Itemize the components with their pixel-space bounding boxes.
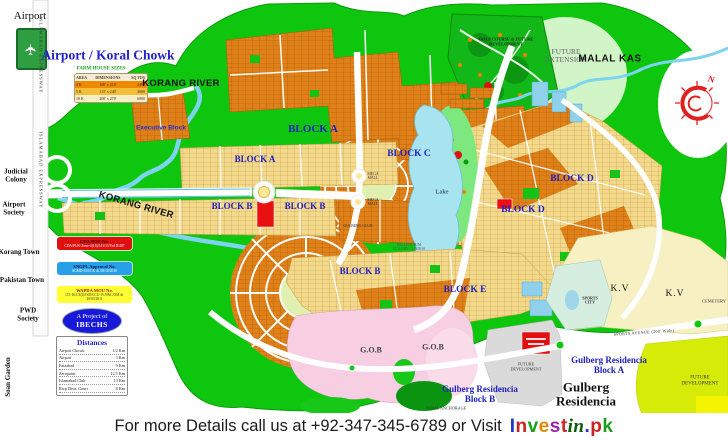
label-executive-block: Executive Block bbox=[136, 124, 186, 131]
label-luxury-condos: MILLENNIUM LUXURY CONDOS bbox=[389, 243, 429, 251]
farm-table-row: 5 K 115' x 240' 3000 bbox=[75, 88, 147, 95]
label-pakistan-town: Pakistan Town bbox=[0, 277, 44, 285]
label-block-b-1: BLOCK B bbox=[212, 202, 253, 212]
label-gob-2: G.O.B bbox=[422, 344, 444, 353]
project-line1: A Project of bbox=[63, 313, 121, 320]
farm-house-sizes-table: AREA DIMENSIONS SQ YDS 4 K 100' x 210' 2… bbox=[74, 73, 148, 103]
logo-in: in bbox=[568, 416, 585, 437]
label-judicial-colony: Judicial Colony bbox=[0, 168, 32, 183]
farm-table-row: 10 K 200' x 270' 6000 bbox=[75, 95, 147, 102]
project-badge: A Project of IBECHS bbox=[62, 308, 122, 334]
sngpl-detail: SGMD-555/CK dt. 08/10/2010 bbox=[59, 269, 130, 273]
label-kv-1: K.V bbox=[610, 284, 629, 294]
contact-banner: For more Details call us at +92-347-345-… bbox=[0, 413, 728, 440]
label-mega-mall-1: MEGA MALL bbox=[362, 172, 384, 180]
label-block-b-3: BLOCK B bbox=[340, 267, 381, 277]
label-golf-course: GOLF COURSE & FUTURE DEVELOPMENT bbox=[478, 37, 534, 46]
logo-invest: Invest bbox=[510, 416, 568, 437]
expressway-label-1: ISLAMABAD EXPRESSWAY bbox=[38, 17, 43, 94]
label-gr-block-a: Gulberg Residencia Block A bbox=[567, 356, 651, 376]
project-line2: IBECHS bbox=[63, 320, 121, 329]
label-soan-garden: Soan Garden bbox=[5, 357, 13, 396]
label-cemetery: CEMETERY bbox=[702, 300, 726, 305]
korang-river-label-top: KORANG RIVER bbox=[142, 79, 220, 89]
wapda-mou-box: WAPDA MOU No. 115-16/CE(I)/ISD/CCU-IV/P&… bbox=[57, 286, 132, 303]
distance-row: Rwp Distt. Court8 Km bbox=[59, 385, 125, 393]
label-future-dev-right: FUTURE DEVELOPMENT bbox=[674, 376, 726, 387]
distance-row: Airport Chowk1/2 Km bbox=[59, 347, 125, 355]
distances-table: Distances Airport Chowk1/2 Km Airport3 K… bbox=[56, 336, 128, 396]
farm-table-row: 4 K 100' x 210' 2400 bbox=[75, 81, 147, 88]
cda-noc-box: CDA NOC No. CDA/PLW-Zone-4(16)/141/13/Vo… bbox=[57, 237, 132, 250]
label-block-e: BLOCK E bbox=[443, 285, 486, 295]
farm-table-header: AREA DIMENSIONS SQ YDS bbox=[75, 74, 147, 81]
label-block-d-1: BLOCK D bbox=[550, 174, 594, 184]
label-pwd-society: PWD Society bbox=[14, 307, 42, 322]
label-gr-block-b: Gulberg Residencia Block B bbox=[432, 385, 528, 405]
cda-noc-detail: CDA/PLW-Zone-4(16)/141/13/Vol-II/487 bbox=[59, 244, 130, 248]
label-gob-1: G.O.B bbox=[360, 347, 382, 356]
distance-row: Islamabad Club13 Km bbox=[59, 377, 125, 385]
distance-row: Faizabad9 Km bbox=[59, 362, 125, 370]
label-block-a-2: BLOCK A bbox=[235, 155, 276, 165]
map-title: Airport / Koral Chowk bbox=[41, 49, 174, 64]
farm-col-area: AREA bbox=[75, 74, 91, 81]
map-canvas: Airport ✈ Airport / Koral Chowk FARM HOU… bbox=[0, 0, 728, 440]
label-block-d-2: BLOCK D bbox=[501, 205, 545, 215]
banner-text: For more Details call us at +92-347-345-… bbox=[115, 417, 502, 436]
investin-pk-logo[interactable]: Investin.pk bbox=[510, 416, 614, 438]
logo-pk: .pk bbox=[585, 416, 614, 437]
label-korang-town: Korang Town bbox=[0, 249, 40, 257]
expressway-label-2: ISLAMABAD EXPRESSWAY bbox=[38, 132, 43, 209]
label-malal-kas: MALAL KAS bbox=[578, 54, 641, 65]
label-block-b-2: BLOCK B bbox=[285, 202, 326, 212]
farm-table-title: FARM HOUSE SIZES bbox=[77, 66, 126, 72]
wapda-detail: 115-16/CE(I)/ISD/CCU-IV/P&C/OM dt. 30/03… bbox=[59, 293, 130, 301]
label-block-a-1: BLOCK A bbox=[288, 123, 338, 135]
label-airport-society: Airport Society bbox=[0, 201, 29, 216]
distance-row: Zeropoint12.5 Km bbox=[59, 370, 125, 378]
farm-col-dimensions: DIMENSIONS bbox=[91, 74, 124, 81]
label-kv-2: K.V bbox=[665, 289, 684, 299]
label-gulberg-club: GULBERG CLUB bbox=[343, 224, 373, 228]
sngpl-approval-box: SNGPL Approval No. SGMD-555/CK dt. 08/10… bbox=[57, 262, 132, 275]
distances-title: Distances bbox=[59, 338, 125, 347]
label-future-dev-center: FUTURE DEVELOPMENT bbox=[505, 362, 547, 371]
label-lake: Lake bbox=[436, 188, 449, 195]
label-gulberg-residencia: Gulberg Residencia bbox=[540, 381, 632, 410]
label-block-c: BLOCK C bbox=[387, 149, 431, 159]
label-sports-city: SPORTS CITY bbox=[577, 297, 603, 306]
label-naval-anchorage: NAVAL ANCHORAGE bbox=[424, 407, 468, 412]
label-mega-mall-2: MEGA MALL bbox=[362, 198, 384, 206]
distance-row: Airport3 Km bbox=[59, 355, 125, 363]
